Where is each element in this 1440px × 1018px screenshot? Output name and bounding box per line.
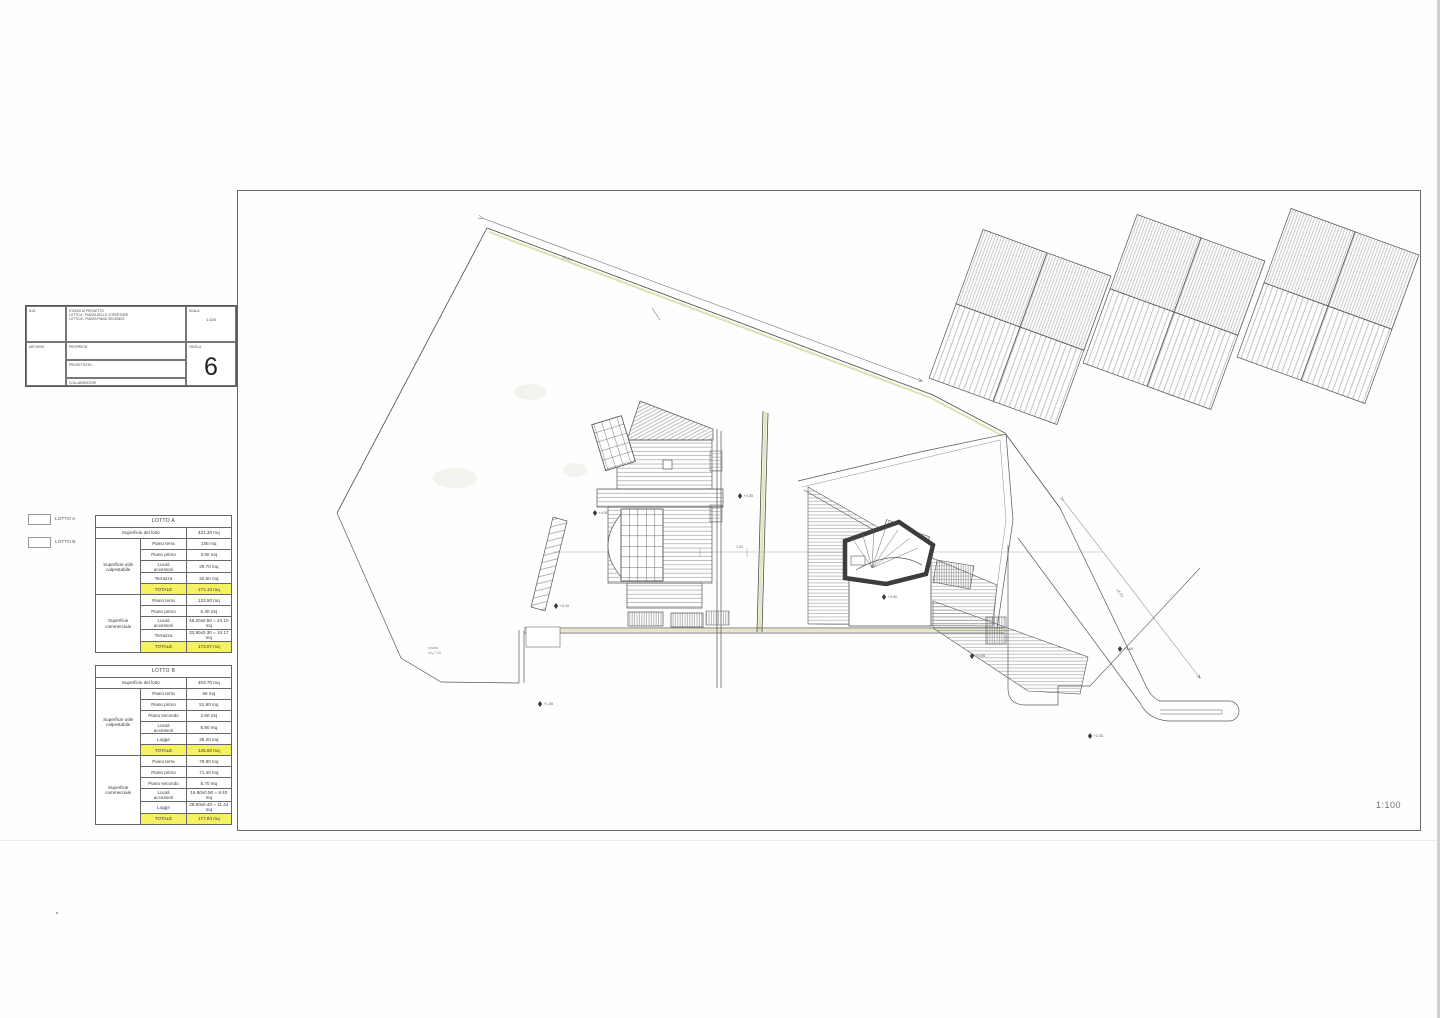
row-label: Piano terra [141,539,186,550]
row-label: Locali accessori [141,789,186,801]
legend-label: LOTTO A [55,517,75,522]
total-value: 171.10 mq [186,584,231,595]
row-value: 48.20x0.50 = 24.10 mq [186,617,231,629]
legend-item-lotto-a: LOTTO A [28,514,98,524]
row-value: 2.60 mq [186,711,231,722]
table-row: Superficie utile calpestabilePiano terra… [96,539,232,550]
table-row: Superficie del lotto403.70 mq [96,678,232,689]
row-label: Locali accessori [141,561,186,573]
site-plan-drawing: +4.35+4.50+4.10+1.35+4.30+4.05+3.60+2.35… [0,0,1440,1018]
table-title: LOTTO A [96,516,232,528]
svg-text:+4.50: +4.50 [599,511,609,515]
row-value: 5.70 mq [186,778,231,789]
row-value: 32.60 mq [186,573,231,584]
row-value: 29.70 mq [186,561,231,573]
title-block-ref: N.61 [26,306,66,342]
level-marker: +4.50 [593,510,608,516]
table-row: Superficie utile calpestabilePiano terra… [96,689,232,700]
scale-label: SCALA [189,309,199,313]
row-value: 6.90 mq [186,722,231,734]
total-value: 145.60 mq [186,745,231,756]
title-block: N.61 ARCHIVIO STUDIO DI PROGETTO LOTTO A… [25,305,237,387]
row-label: Piano terra [141,595,186,606]
row-value: 5.30 mq [186,606,231,617]
total-label: TOTALE [141,641,186,652]
legend-label: LOTTO B [55,540,75,545]
svg-text:+4.35: +4.35 [744,494,754,498]
title-block-scale: SCALA 1:100 [186,306,236,342]
road-note: strada mq 7.06 [428,646,441,655]
level-marker: +1.35 [538,701,553,707]
row-label: Terrazza [141,629,186,641]
scan-mottling [433,384,587,488]
lotto-a-area-table: LOTTO ASuperficie del lotto421.30 mqSupe… [95,515,232,653]
level-marker: +4.35 [738,493,753,499]
dimension-label: 1.50 [736,545,743,549]
lotto-b-area-table: LOTTO BSuperficie del lotto403.70 mqSupe… [95,665,232,825]
table-row: LOTTO A [96,516,232,528]
row-value: 56 mq [186,689,231,700]
scanned-drawing-sheet: +4.35+4.50+4.10+1.35+4.30+4.05+3.60+2.35… [0,0,1440,1018]
legend-swatch-icon [28,537,51,548]
group-label: Superficie utile calpestabile [96,689,141,756]
roof-plans [929,209,1419,425]
title-block-sheet: TAVOLA 6 [186,342,236,386]
title-block-project-description: STUDIO DI PROGETTO LOTTO A - PIANTA DELL… [66,306,186,342]
row-value: 3.80 mq [186,550,231,561]
table-row: Superficie commercialePiano terra133.50 … [96,595,232,606]
total-label: TOTALE [141,813,186,824]
group-label: Superficie utile calpestabile [96,539,141,595]
row-label: Piano terra [141,689,186,700]
group-label: Superficie commerciale [96,756,141,825]
row-value: 28.20 mq [186,734,231,745]
scale-value: 1:100 [189,317,233,322]
road-note-line2: mq 7.06 [428,651,441,655]
lotto-b-building [798,434,1088,694]
lot-area-label: Superficie del lotto [96,528,187,539]
row-label: Terrazza [141,573,186,584]
total-value: 173.07 mq [186,641,231,652]
level-marker: +2.35 [1088,733,1103,739]
table-row: Superficie del lotto421.30 mq [96,528,232,539]
row-value: 105 mq [186,539,231,550]
level-marker: +4.30 [882,594,897,600]
total-label: TOTALE [141,745,186,756]
lot-area-value: 421.30 mq [186,528,231,539]
row-label: Locali accessori [141,617,186,629]
row-label: Piano primo [141,606,186,617]
title-block-property-label: PROPRIETA' [66,342,186,360]
legend: LOTTO A LOTTO B [28,514,98,560]
row-label: Piano secondo [141,711,186,722]
svg-text:+4.05: +4.05 [976,654,986,658]
level-marker: +4.10 [554,603,569,609]
row-label: Piano primo [141,767,186,778]
table-title: LOTTO B [96,666,232,678]
table-row: Superficie commercialePiano terra79.90 m… [96,756,232,767]
legend-swatch-icon [28,514,51,525]
row-value: 133.50 mq [186,595,231,606]
svg-text:+1.35: +1.35 [544,702,554,706]
road-note-line1: strada [428,646,438,650]
level-marker: +3.60 [1118,646,1133,652]
svg-text:+4.30: +4.30 [888,595,898,599]
row-value: 51.90 mq [186,700,231,711]
row-label: Piano primo [141,700,186,711]
dimension-label: 14.60 [1115,588,1124,598]
row-label: Piano secondo [141,778,186,789]
row-value: 33.90x0.30 = 10.17 mq [186,629,231,641]
project-line: LOTTO B - PIANTA PIANO SECONDO [69,317,183,321]
row-label: Logge [141,734,186,745]
row-label: Piano terra [141,756,186,767]
svg-text:+2.35: +2.35 [1094,734,1104,738]
legend-item-lotto-b: LOTTO B [28,537,98,547]
row-value: 79.90 mq [186,756,231,767]
lot-area-value: 403.70 mq [186,678,231,689]
sheet-scale-note: 1:100 [1376,800,1401,810]
row-value: 16.80x0.50 = 8.40 mq [186,789,231,801]
scan-fold-line [0,840,1440,841]
total-label: TOTALE [141,584,186,595]
svg-text:+3.60: +3.60 [1124,647,1134,651]
lotto-a-building [531,401,729,688]
title-block-collaborators-label: COLLABORATORI [66,378,186,386]
row-value: 28.60x0.40 = 11.44 mq [186,801,231,813]
sheet-label: TAVOLA [189,345,201,349]
table-row: LOTTO B [96,666,232,678]
group-label: Superficie commerciale [96,595,141,653]
level-marker: +4.05 [970,653,985,659]
total-value: 177.84 mq [186,813,231,824]
row-label: Locali accessori [141,722,186,734]
row-label: Piano primo [141,550,186,561]
title-block-archive-label: ARCHIVIO [26,342,66,386]
scan-speck [56,912,58,914]
row-label: Logge [141,801,186,813]
lot-area-label: Superficie del lotto [96,678,187,689]
sheet-number: 6 [189,351,233,385]
title-block-designer-label: PROGETTISTA : [66,360,186,378]
row-value: 71.40 mq [186,767,231,778]
svg-text:+4.10: +4.10 [560,604,570,608]
